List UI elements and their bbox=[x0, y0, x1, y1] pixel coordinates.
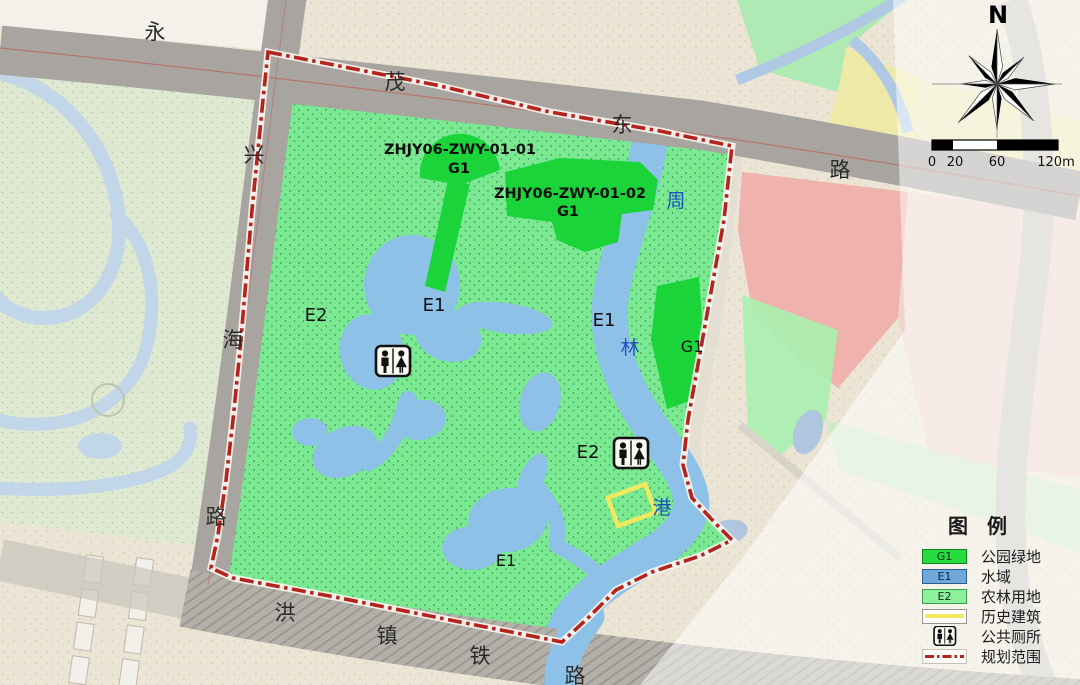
legend-label-e2: 农林用地 bbox=[981, 586, 1041, 607]
road-north-char-2: 茂 bbox=[385, 70, 406, 94]
scale-tick-120m: 120m bbox=[1037, 155, 1074, 170]
road-south-char-1: 洪 bbox=[275, 601, 296, 625]
zone-label-e1-river: E1 bbox=[593, 310, 616, 331]
legend-swatch-historic bbox=[922, 609, 967, 624]
legend-label-g1: 公园绿地 bbox=[981, 546, 1041, 567]
legend-title: 图 例 bbox=[948, 510, 1080, 539]
road-south-char-2: 镇 bbox=[377, 624, 398, 648]
toilet-icon-east bbox=[614, 438, 648, 468]
scale-bar: 0 20 60 120m bbox=[928, 140, 1075, 170]
legend: 图 例 G1 公园绿地 E1 水域 E2 农林用地 历史建筑 公共厕所 规划范围 bbox=[922, 510, 1080, 668]
scale-tick-60: 60 bbox=[989, 155, 1006, 170]
river-char-2: 林 bbox=[620, 337, 639, 359]
road-north-char-4: 路 bbox=[830, 158, 851, 182]
legend-label-boundary: 规划范围 bbox=[981, 646, 1041, 667]
zone-label-e1-south: E1 bbox=[496, 551, 516, 570]
toilet-legend-icon bbox=[933, 626, 957, 646]
left-park-pond bbox=[78, 433, 122, 459]
scale-tick-0: 0 bbox=[928, 155, 936, 170]
planning-map: N 0 20 60 120m 永 茂 东 路 兴 海 路 洪 镇 铁 路 周 林… bbox=[0, 0, 1080, 685]
road-west-char-1: 兴 bbox=[244, 143, 265, 167]
legend-item-historic: 历史建筑 bbox=[922, 608, 1080, 624]
toilet-icon-west bbox=[376, 346, 410, 376]
map-canvas: N 0 20 60 120m 永 茂 东 路 兴 海 路 洪 镇 铁 路 周 林… bbox=[0, 0, 1080, 685]
legend-swatch-boundary bbox=[922, 649, 967, 664]
legend-label-toilet: 公共厕所 bbox=[981, 626, 1041, 647]
plot-2-type: G1 bbox=[557, 204, 579, 220]
zone-label-e2-west: E2 bbox=[305, 305, 328, 326]
legend-item-e1: E1 水域 bbox=[922, 568, 1080, 584]
legend-swatch-g1: G1 bbox=[922, 549, 967, 564]
legend-swatch-e1: E1 bbox=[922, 569, 967, 584]
legend-label-historic: 历史建筑 bbox=[981, 606, 1041, 627]
road-south-char-3: 铁 bbox=[470, 644, 491, 668]
scale-tick-20: 20 bbox=[947, 155, 964, 170]
road-south-char-4: 路 bbox=[565, 664, 586, 685]
legend-item-toilet: 公共厕所 bbox=[922, 628, 1080, 644]
road-west-char-3: 路 bbox=[206, 505, 227, 529]
zone-label-e1-lake: E1 bbox=[423, 295, 446, 316]
road-north-char-1: 永 bbox=[145, 20, 166, 44]
river-char-1: 周 bbox=[666, 190, 685, 212]
plot-1-type: G1 bbox=[448, 161, 470, 177]
plot-2-code: ZHJY06-ZWY-01-02 bbox=[494, 186, 646, 202]
legend-item-boundary: 规划范围 bbox=[922, 648, 1080, 664]
road-north-char-3: 东 bbox=[612, 113, 633, 137]
legend-swatch-e2: E2 bbox=[922, 589, 967, 604]
river-char-3: 港 bbox=[652, 497, 671, 519]
zone-label-e2-south: E2 bbox=[577, 442, 600, 463]
road-west-char-2: 海 bbox=[223, 328, 244, 352]
legend-swatch-toilet bbox=[922, 629, 967, 644]
plot-1-code: ZHJY06-ZWY-01-01 bbox=[384, 142, 536, 158]
boundary-legend-line bbox=[923, 650, 966, 663]
zone-label-g1-east: G1 bbox=[681, 337, 704, 356]
legend-historic-yellow-bar bbox=[925, 614, 964, 618]
compass-north-label: N bbox=[988, 1, 1008, 29]
legend-item-g1: G1 公园绿地 bbox=[922, 548, 1080, 564]
legend-item-e2: E2 农林用地 bbox=[922, 588, 1080, 604]
legend-label-e1: 水域 bbox=[981, 566, 1011, 587]
